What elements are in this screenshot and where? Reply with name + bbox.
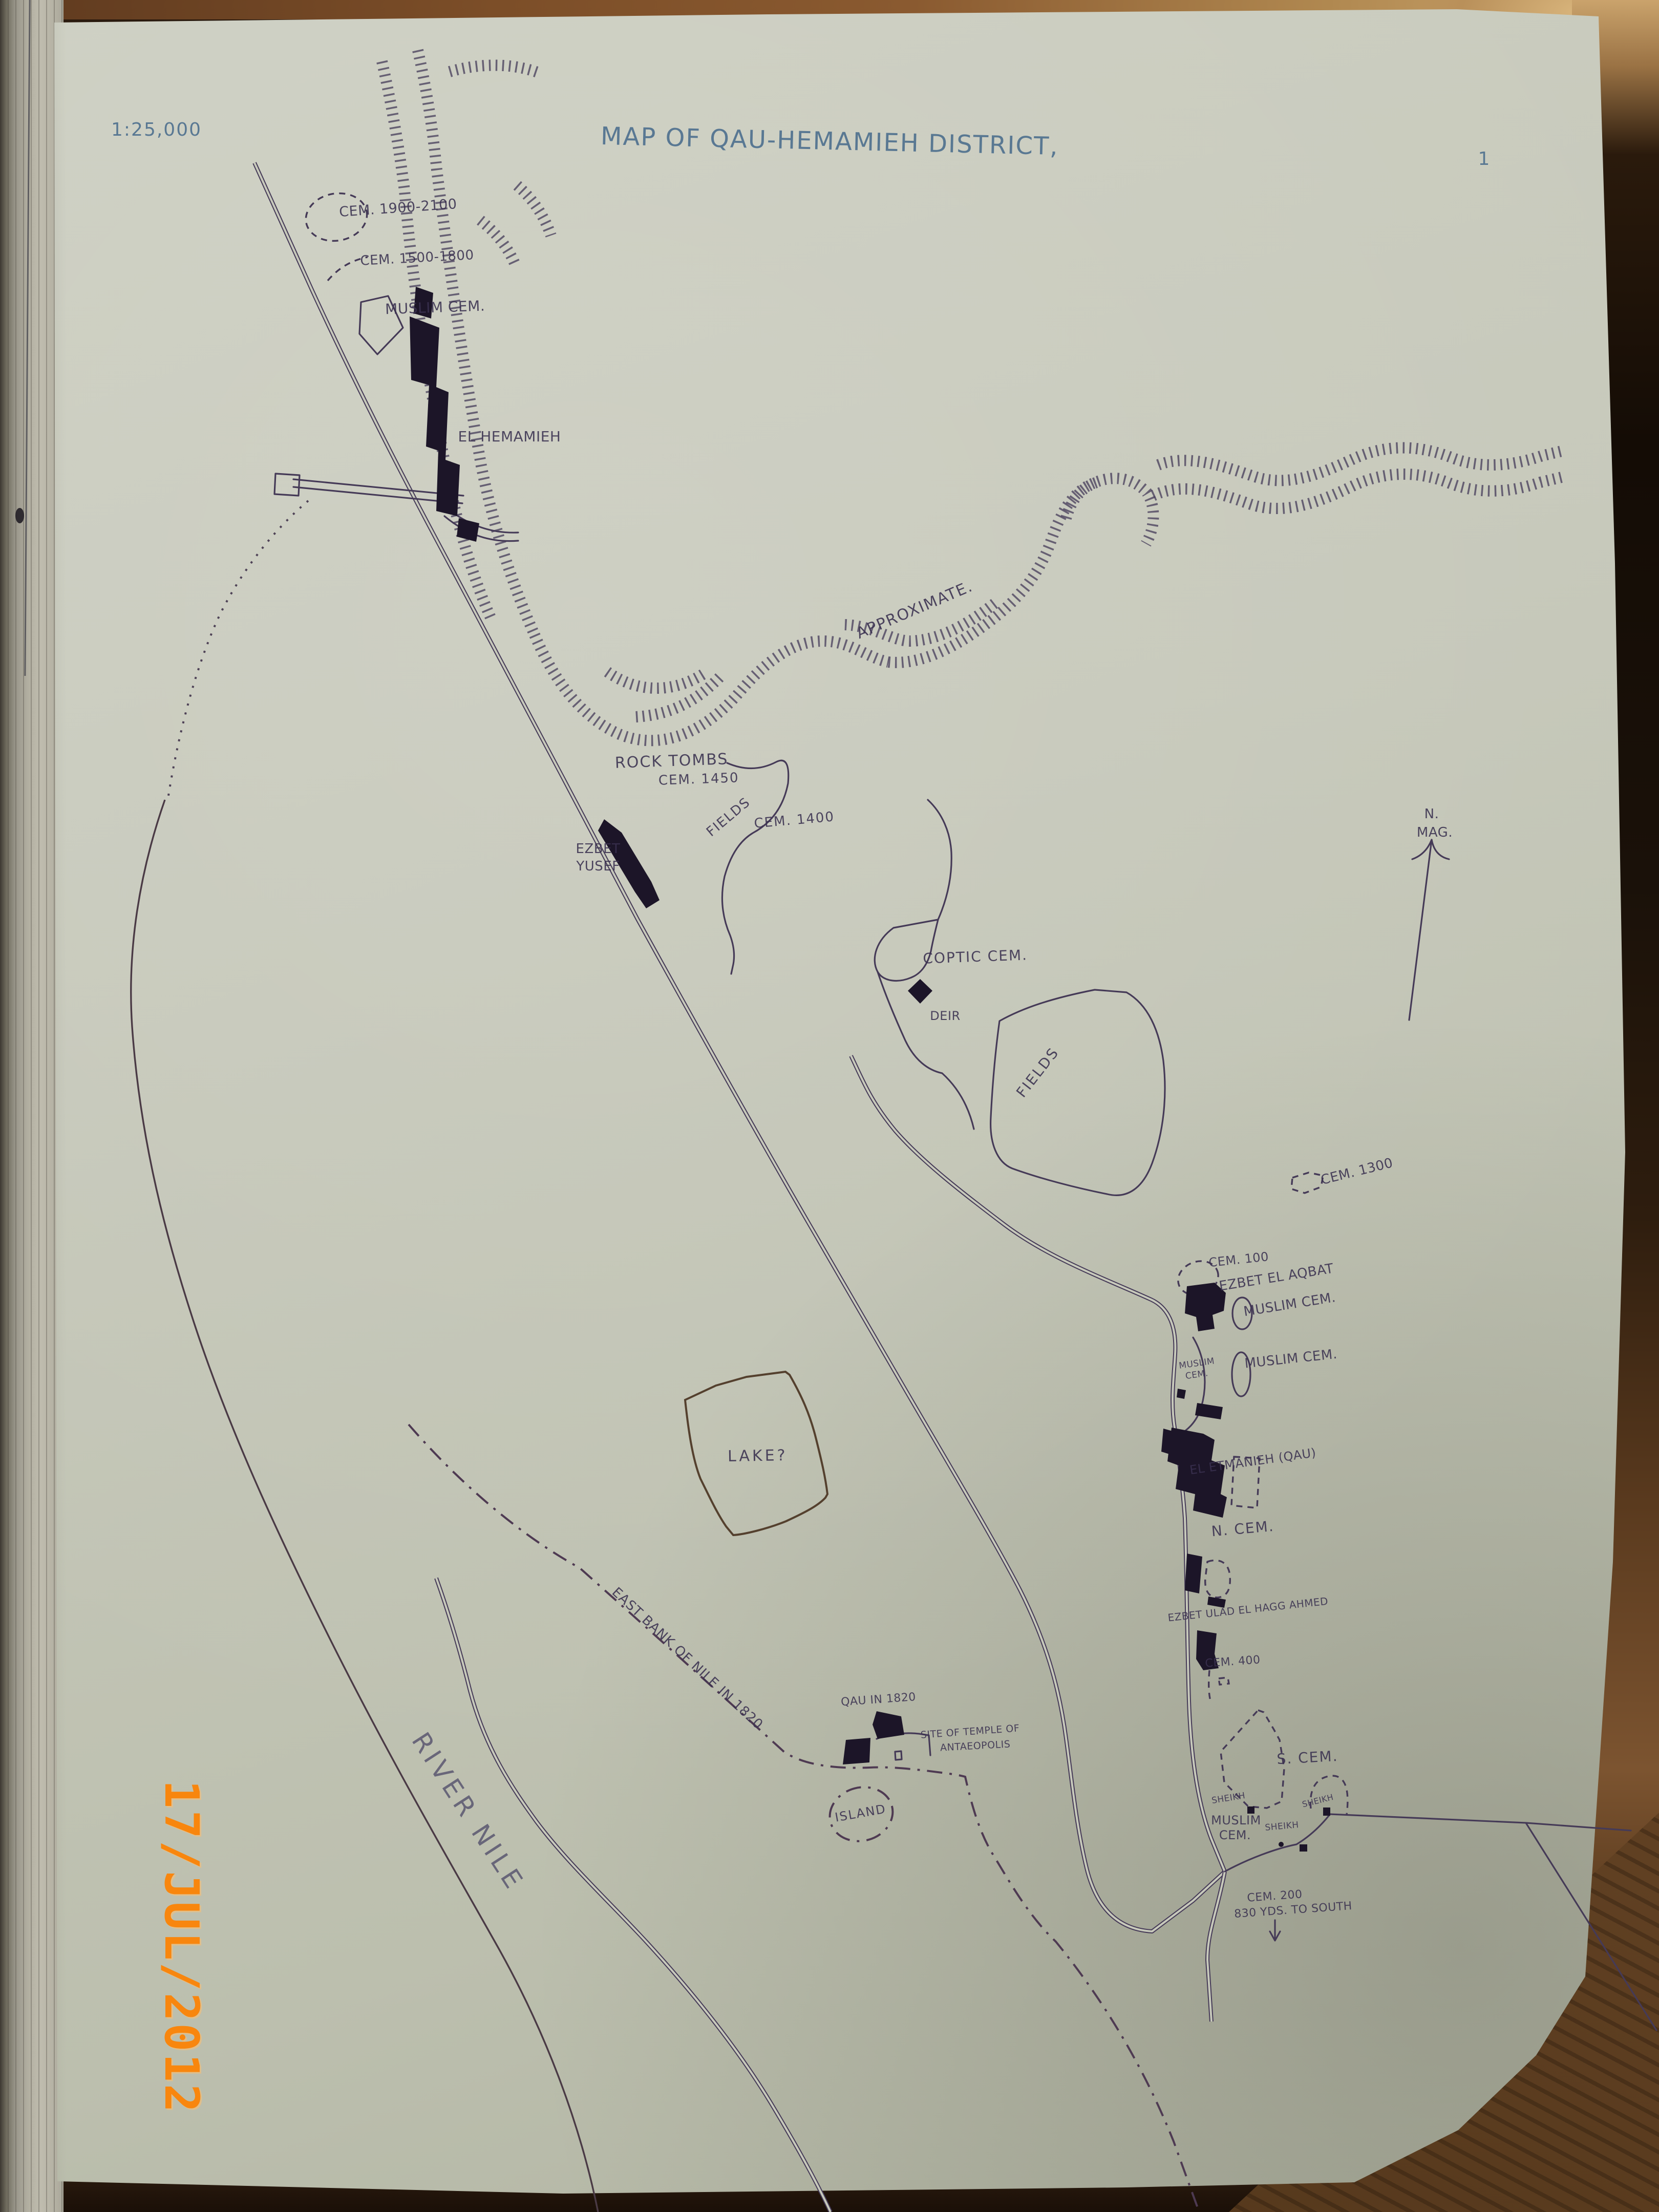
camera-date-stamp: 17/JUL/2012 [154, 1780, 209, 2114]
book-page [0, 0, 1659, 2212]
ink-spot [15, 508, 24, 523]
photo-of-book-page: 1:25,000 MAP OF QAU-HEMAMIEH DISTRICT, 1… [0, 0, 1659, 2212]
book-spine-line [24, 0, 30, 676]
book-gutter-page-edges [0, 0, 63, 2212]
